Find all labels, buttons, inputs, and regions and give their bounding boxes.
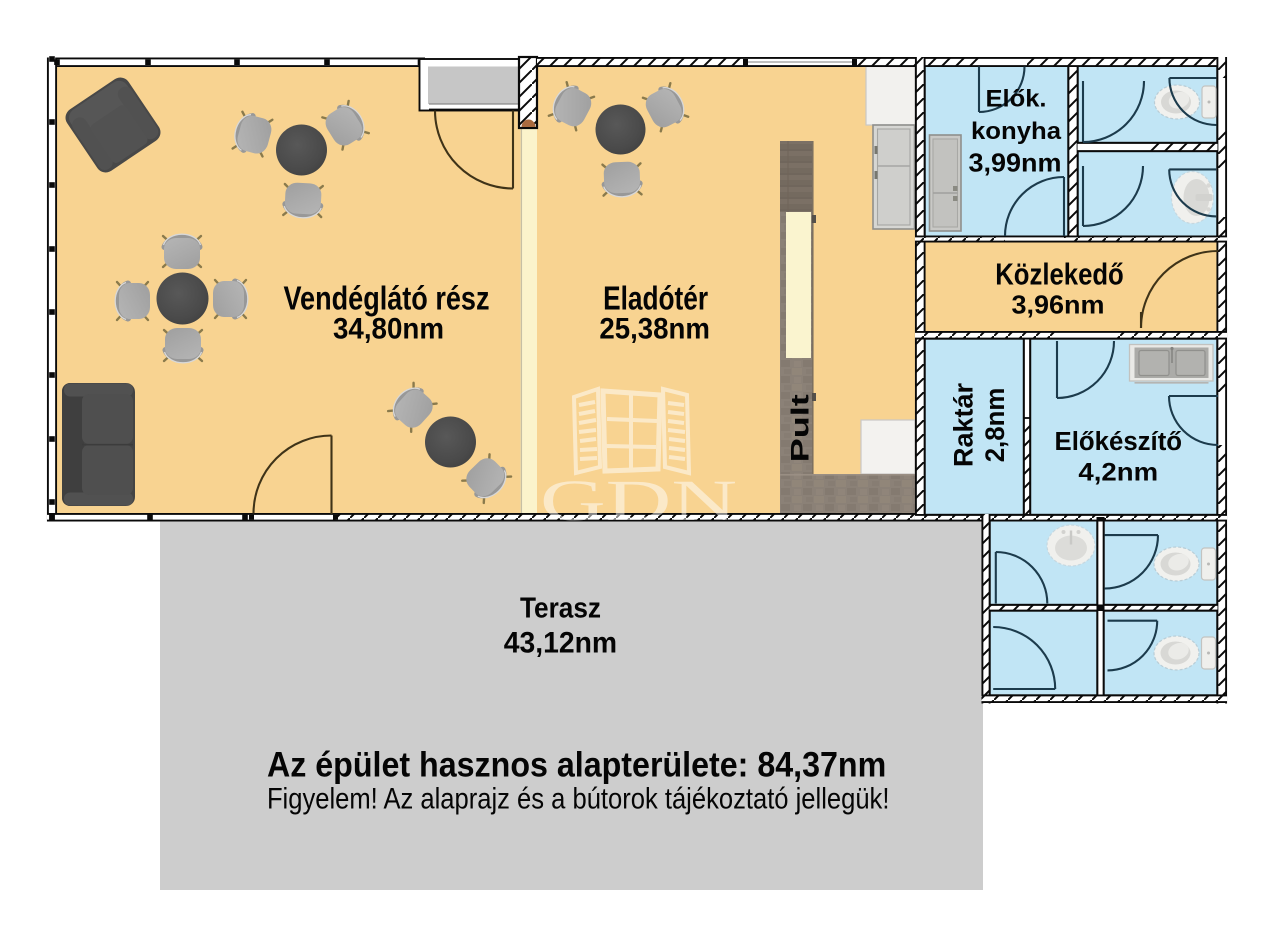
svg-text:Raktár: Raktár	[949, 383, 979, 467]
svg-text:Pult: Pult	[787, 393, 815, 462]
svg-text:konyha: konyha	[971, 118, 1062, 145]
svg-text:3,96nm: 3,96nm	[1012, 289, 1105, 319]
svg-text:Figyelem! Az alaprajz és a bút: Figyelem! Az alaprajz és a bútorok tájék…	[267, 783, 890, 816]
svg-text:43,12nm: 43,12nm	[504, 627, 617, 660]
svg-text:Vendéglátó rész: Vendéglátó rész	[284, 280, 490, 317]
svg-text:Eladótér: Eladótér	[603, 280, 708, 317]
svg-text:3,99nm: 3,99nm	[969, 148, 1062, 178]
svg-text:34,80nm: 34,80nm	[333, 312, 444, 345]
svg-text:4,2nm: 4,2nm	[1078, 458, 1158, 486]
svg-text:Az épület hasznos alapterülete: Az épület hasznos alapterülete: 84,37nm	[267, 746, 886, 785]
svg-text:Elők.: Elők.	[986, 86, 1047, 113]
svg-text:Közlekedő: Közlekedő	[995, 257, 1124, 292]
svg-text:Előkészítő: Előkészítő	[1055, 428, 1183, 456]
svg-text:GDN: GDN	[540, 468, 737, 533]
svg-text:Terasz: Terasz	[520, 593, 601, 625]
svg-text:25,38nm: 25,38nm	[599, 313, 710, 346]
svg-text:2,8nm: 2,8nm	[980, 388, 1010, 463]
